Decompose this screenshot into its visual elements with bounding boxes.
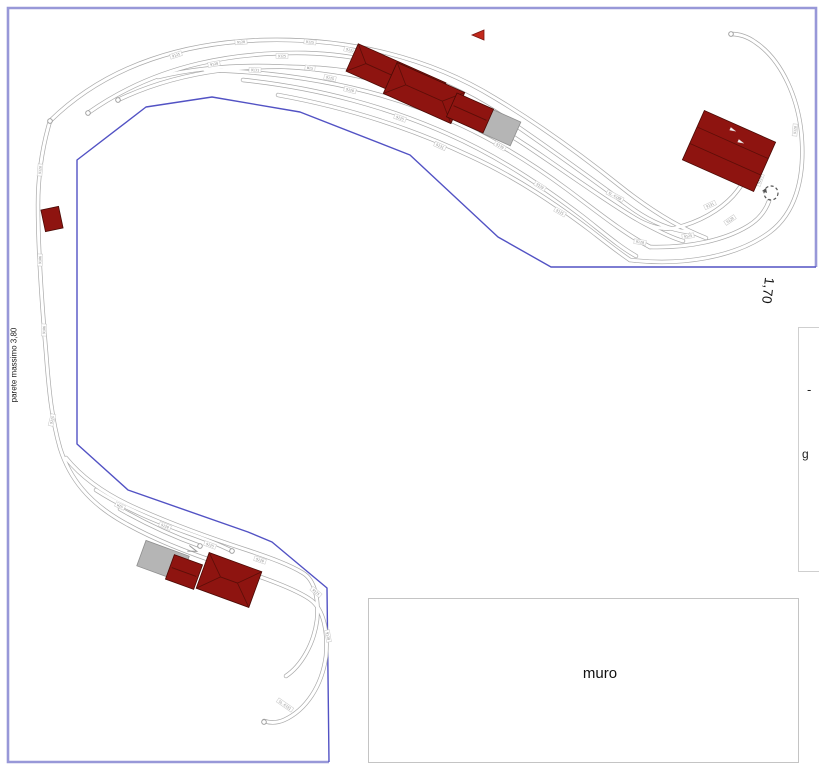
track-part-label: 9131: [249, 67, 261, 72]
svg-text:9131: 9131: [345, 47, 354, 53]
track-part-label: 9120: [792, 124, 798, 136]
track-end-marker: [48, 119, 53, 124]
red-flag-icon: [472, 30, 484, 40]
track-part-label: 9120: [634, 239, 647, 245]
svg-text:9120: 9120: [793, 126, 798, 134]
track-part-label: 9106: [37, 254, 42, 266]
track-left-main: [38, 121, 326, 722]
track-end-marker: [262, 720, 267, 725]
track-end-marker: [729, 32, 734, 37]
svg-text:SL-E191: SL-E191: [278, 700, 292, 711]
track-part-label: W15: [305, 65, 316, 71]
track-part-label: 9106: [41, 324, 46, 336]
track-part-label: 9120: [37, 164, 43, 176]
edge-text-fragment-dash: -: [807, 382, 811, 397]
svg-text:9125: 9125: [306, 40, 315, 45]
track-core-left-main: [38, 121, 326, 722]
svg-text:9131: 9131: [251, 68, 259, 72]
track-end-marker: [198, 544, 203, 549]
track-part-label: 9120: [235, 39, 247, 45]
track-end-marker: [116, 98, 121, 103]
track-end-marker: [230, 549, 235, 554]
track-part-label: 9131: [704, 200, 717, 209]
track-plan-canvas: 9125912091259131912091259120917091319125…: [0, 0, 819, 768]
wall-label: muro: [560, 665, 640, 682]
svg-text:9120: 9120: [345, 87, 354, 93]
svg-text:9106: 9106: [42, 326, 46, 334]
track-part-label: 9120: [724, 215, 737, 226]
track-part-label: SL-E191: [276, 698, 293, 712]
svg-text:9106: 9106: [38, 256, 42, 264]
edge-text-fragment-g: g: [802, 447, 809, 461]
svg-text:9120: 9120: [38, 166, 43, 174]
svg-text:9120: 9120: [237, 40, 245, 45]
max-wall-note: parete massimo 3,80: [10, 328, 19, 403]
track-part-label: 9125: [304, 39, 316, 45]
svg-text:W15: W15: [307, 66, 314, 71]
track-part-label: 9125: [682, 233, 695, 239]
track-part-label: 9125: [276, 53, 288, 58]
building-depot-yard: [196, 553, 262, 608]
building-hut-left: [41, 206, 63, 231]
track-end-marker: [86, 111, 91, 116]
rotation-marker-icon: [764, 186, 778, 200]
svg-text:9125: 9125: [278, 54, 286, 58]
